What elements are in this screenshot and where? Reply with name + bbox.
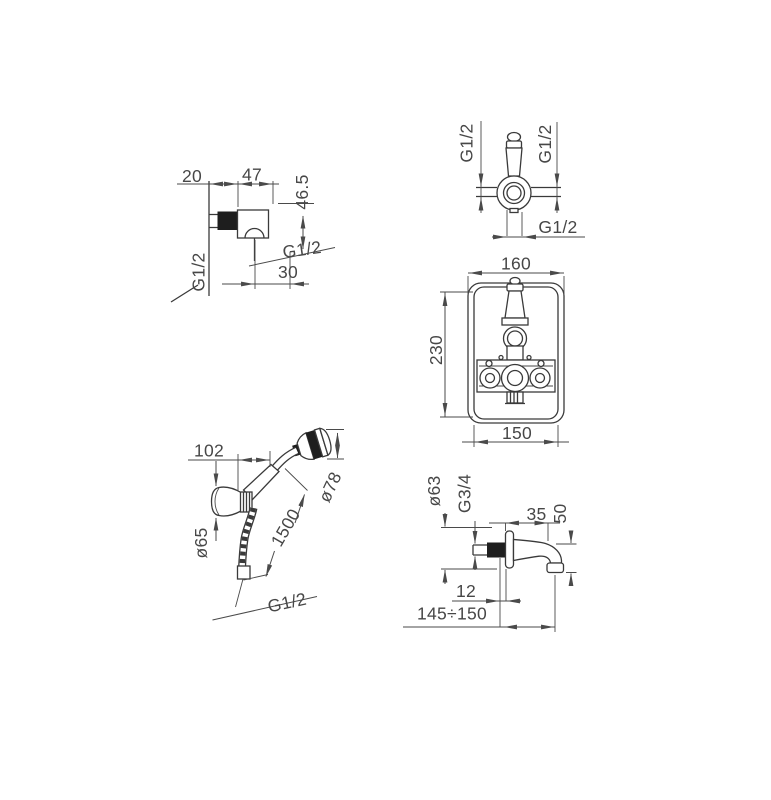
spout-flange — [506, 531, 514, 568]
valve-lever — [506, 148, 522, 176]
elbow-dim-46-5: 46.5 — [292, 174, 312, 209]
elbow-thread-solid — [218, 212, 238, 231]
valve-thread-bottom-label: G1/2 — [538, 217, 577, 237]
elbow-thread-inlet-label: G1/2 — [189, 252, 209, 291]
spout-thread-label: G3/4 — [455, 474, 475, 513]
spout-outlet — [547, 563, 564, 573]
trim-dim-150: 150 — [502, 423, 532, 443]
spout-dim-50: 50 — [550, 503, 570, 523]
shower-dim-bracket: ø65 — [191, 527, 211, 558]
shower-grip-bell — [212, 487, 242, 516]
valve-thread-right-label: G1/2 — [535, 124, 555, 163]
technical-drawing-canvas: 20 47 46.5 G1/2 30 G1/2 — [0, 0, 771, 800]
spout-dim-12: 12 — [456, 581, 476, 601]
technical-drawing-page: 20 47 46.5 G1/2 30 G1/2 — [0, 0, 771, 800]
trim-dim-230: 230 — [426, 335, 446, 365]
spout-dim-35: 35 — [526, 504, 546, 524]
thermostat-lever — [505, 291, 525, 318]
valve-lever-cap — [507, 141, 522, 148]
valve-thread-left-label: G1/2 — [457, 123, 477, 162]
elbow-dim-47: 47 — [242, 165, 262, 185]
spout-dim-flange: ø63 — [424, 475, 444, 506]
trim-dim-160: 160 — [501, 254, 531, 274]
spout-thread-solid — [487, 543, 507, 558]
elbow-dim-20: 20 — [182, 166, 202, 186]
spout-dim-reach: 145÷150 — [417, 604, 487, 624]
hose-end-fitting — [238, 566, 251, 579]
shower-dim-102: 102 — [194, 441, 224, 461]
canvas-background — [0, 0, 771, 800]
elbow-dim-30: 30 — [278, 262, 298, 282]
